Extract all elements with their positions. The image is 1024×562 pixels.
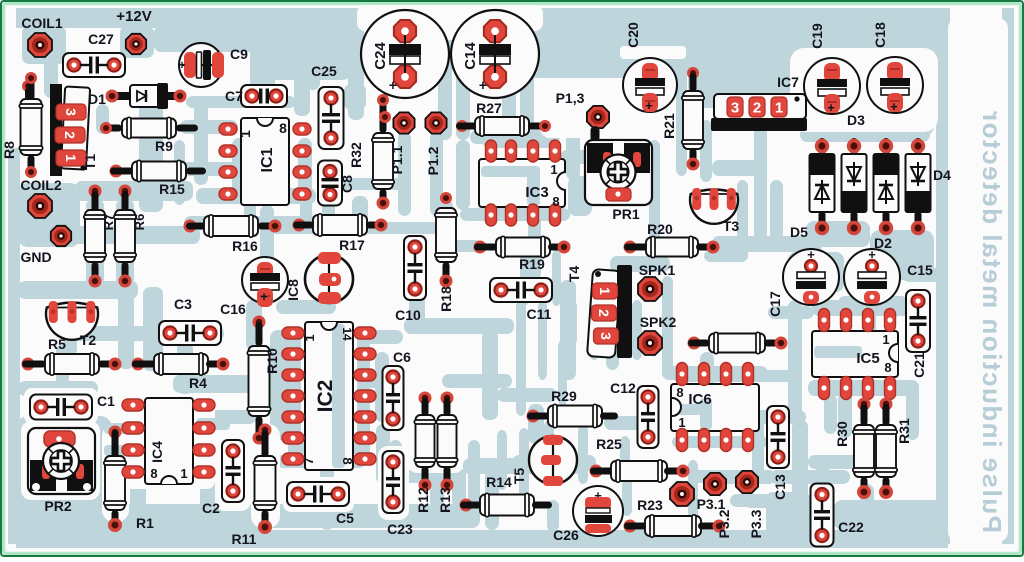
svg-text:C12: C12: [610, 380, 636, 396]
svg-text:C27: C27: [88, 31, 114, 47]
svg-text:R6: R6: [132, 214, 147, 231]
svg-text:R14: R14: [486, 474, 512, 490]
svg-text:IC1: IC1: [259, 147, 276, 172]
svg-text:R31: R31: [896, 418, 912, 444]
svg-text:R7: R7: [101, 214, 116, 231]
svg-text:C14: C14: [462, 42, 479, 70]
svg-text:8: 8: [676, 385, 683, 400]
svg-text:R1: R1: [136, 515, 154, 531]
svg-text:IC2: IC2: [314, 380, 337, 413]
svg-text:R16: R16: [232, 238, 258, 254]
svg-text:D3: D3: [847, 112, 865, 128]
svg-text:R20: R20: [647, 221, 673, 237]
svg-text:R21: R21: [661, 113, 677, 139]
svg-text:8: 8: [340, 457, 355, 464]
svg-text:P1.2: P1.2: [425, 146, 441, 175]
svg-text:T3: T3: [723, 218, 740, 234]
svg-text:C1: C1: [97, 393, 115, 409]
svg-text:R19: R19: [519, 256, 545, 272]
svg-text:PR2: PR2: [44, 498, 71, 514]
svg-text:3: 3: [63, 108, 79, 116]
svg-text:+: +: [178, 58, 185, 72]
svg-text:P1,3: P1,3: [556, 90, 585, 106]
svg-text:D1: D1: [88, 91, 106, 107]
svg-text:C10: C10: [395, 307, 421, 323]
svg-text:1: 1: [302, 334, 317, 341]
svg-text:R9: R9: [155, 138, 173, 154]
svg-text:C3: C3: [174, 296, 192, 312]
svg-text:C16: C16: [220, 301, 246, 317]
svg-text:2: 2: [596, 309, 612, 317]
svg-text:2: 2: [62, 131, 78, 139]
svg-text:1: 1: [180, 466, 187, 481]
svg-text:R15: R15: [159, 181, 185, 197]
svg-text:SPK1: SPK1: [639, 262, 676, 278]
svg-text:C25: C25: [311, 63, 337, 79]
svg-text:R4: R4: [189, 375, 207, 391]
svg-text:Pulse induction metal detector: Pulse induction metal detector: [977, 109, 1007, 533]
svg-text:R25: R25: [596, 436, 622, 452]
svg-text:1: 1: [237, 130, 253, 138]
svg-text:R18: R18: [438, 286, 454, 312]
svg-text:P3.3: P3.3: [748, 509, 764, 538]
svg-text:C5: C5: [336, 510, 354, 526]
svg-text:R30: R30: [834, 421, 850, 447]
svg-text:+: +: [479, 77, 487, 93]
svg-text:8: 8: [150, 466, 157, 481]
svg-text:R11: R11: [232, 531, 257, 547]
svg-text:R8: R8: [1, 141, 17, 159]
svg-text:IC6: IC6: [688, 391, 711, 408]
svg-text:R13: R13: [437, 487, 453, 513]
svg-text:8: 8: [884, 360, 891, 375]
svg-text:C23: C23: [387, 521, 413, 537]
svg-text:GND: GND: [20, 249, 51, 265]
svg-text:T5: T5: [511, 468, 527, 485]
svg-text:R17: R17: [339, 237, 365, 253]
svg-text:C24: C24: [372, 42, 389, 70]
svg-text:C21: C21: [911, 352, 927, 378]
svg-text:+12V: +12V: [116, 8, 151, 25]
svg-text:C7: C7: [225, 88, 243, 104]
svg-text:+: +: [827, 100, 835, 115]
svg-text:IC7: IC7: [777, 74, 799, 90]
svg-text:C26: C26: [553, 527, 579, 543]
svg-text:COIL1: COIL1: [21, 15, 62, 31]
svg-text:C22: C22: [838, 519, 864, 535]
svg-text:7: 7: [301, 457, 316, 464]
svg-text:C11: C11: [527, 306, 552, 322]
svg-text:1: 1: [550, 162, 557, 177]
svg-text:C15: C15: [907, 262, 933, 278]
svg-text:+: +: [389, 77, 397, 93]
svg-text:1: 1: [775, 99, 783, 116]
svg-text:+: +: [645, 98, 653, 113]
svg-text:D4: D4: [933, 167, 951, 183]
svg-text:1: 1: [63, 154, 79, 162]
svg-text:R10: R10: [264, 348, 280, 374]
svg-text:C19: C19: [809, 23, 825, 49]
svg-text:D2: D2: [874, 235, 892, 251]
svg-text:C8: C8: [339, 175, 355, 193]
svg-text:COIL2: COIL2: [20, 177, 61, 193]
svg-text:R12: R12: [415, 487, 431, 513]
svg-text:C6: C6: [393, 349, 411, 365]
svg-text:C2: C2: [202, 500, 220, 516]
svg-text:3: 3: [598, 332, 614, 340]
svg-text:3: 3: [731, 99, 739, 116]
svg-text:D5: D5: [790, 224, 808, 240]
svg-text:SPK2: SPK2: [640, 314, 677, 330]
svg-text:T1: T1: [82, 154, 98, 171]
svg-text:IC3: IC3: [525, 184, 548, 201]
svg-text:R27: R27: [476, 100, 502, 116]
svg-text:T2: T2: [80, 332, 97, 348]
svg-text:2: 2: [753, 99, 761, 116]
svg-text:8: 8: [279, 120, 287, 136]
svg-text:14: 14: [340, 327, 354, 341]
svg-text:C13: C13: [772, 474, 788, 500]
svg-text:C20: C20: [625, 22, 641, 48]
svg-text:8: 8: [552, 194, 559, 209]
svg-text:R32: R32: [348, 142, 364, 168]
svg-text:+: +: [890, 99, 898, 114]
svg-text:IC5: IC5: [856, 350, 879, 367]
svg-text:T4: T4: [566, 266, 582, 283]
svg-text:IC8: IC8: [285, 279, 301, 301]
svg-text:R29: R29: [551, 388, 577, 404]
svg-text:R23: R23: [637, 497, 663, 513]
svg-text:R5: R5: [48, 336, 66, 352]
svg-text:C9: C9: [230, 46, 248, 62]
svg-text:1: 1: [597, 287, 613, 295]
svg-text:IC4: IC4: [149, 441, 165, 463]
svg-text:C18: C18: [872, 22, 888, 48]
svg-text:C17: C17: [767, 291, 783, 317]
svg-text:P1.1: P1.1: [389, 145, 405, 174]
svg-text:+: +: [260, 289, 268, 304]
svg-text:PR1: PR1: [612, 206, 639, 222]
svg-text:1: 1: [678, 415, 685, 430]
svg-text:P3.2: P3.2: [716, 509, 732, 538]
svg-text:1: 1: [882, 332, 889, 347]
